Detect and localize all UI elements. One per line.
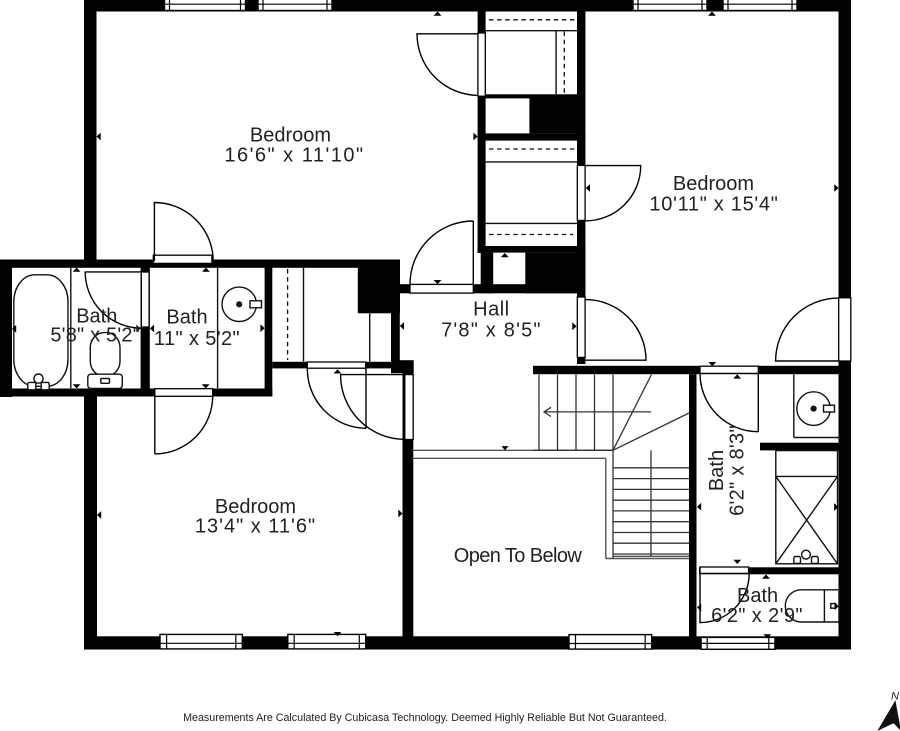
- svg-text:Bedroom: Bedroom: [673, 173, 754, 195]
- svg-text:5'8" x 5'2": 5'8" x 5'2": [50, 324, 140, 346]
- svg-text:Bedroom: Bedroom: [250, 125, 331, 147]
- svg-text:6'2" x 2'9": 6'2" x 2'9": [711, 605, 803, 627]
- svg-text:Hall: Hall: [473, 298, 509, 320]
- svg-text:11" x 5'2": 11" x 5'2": [154, 328, 240, 350]
- svg-text:13'4" x 11'6": 13'4" x 11'6": [195, 515, 316, 537]
- svg-text:7'8" x 8'5": 7'8" x 8'5": [441, 320, 542, 342]
- svg-text:Bath: Bath: [737, 585, 778, 607]
- svg-text:N: N: [891, 691, 899, 703]
- svg-text:Bath: Bath: [706, 450, 728, 491]
- svg-text:Measurements Are Calculated By: Measurements Are Calculated By Cubicasa …: [183, 712, 667, 724]
- svg-text:Bath: Bath: [166, 307, 207, 329]
- svg-text:16'6" x 11'10": 16'6" x 11'10": [224, 145, 364, 167]
- svg-text:6'2" x 8'3": 6'2" x 8'3": [727, 425, 749, 516]
- svg-text:10'11" x 15'4": 10'11" x 15'4": [649, 193, 778, 215]
- svg-text:Open To Below: Open To Below: [454, 545, 583, 567]
